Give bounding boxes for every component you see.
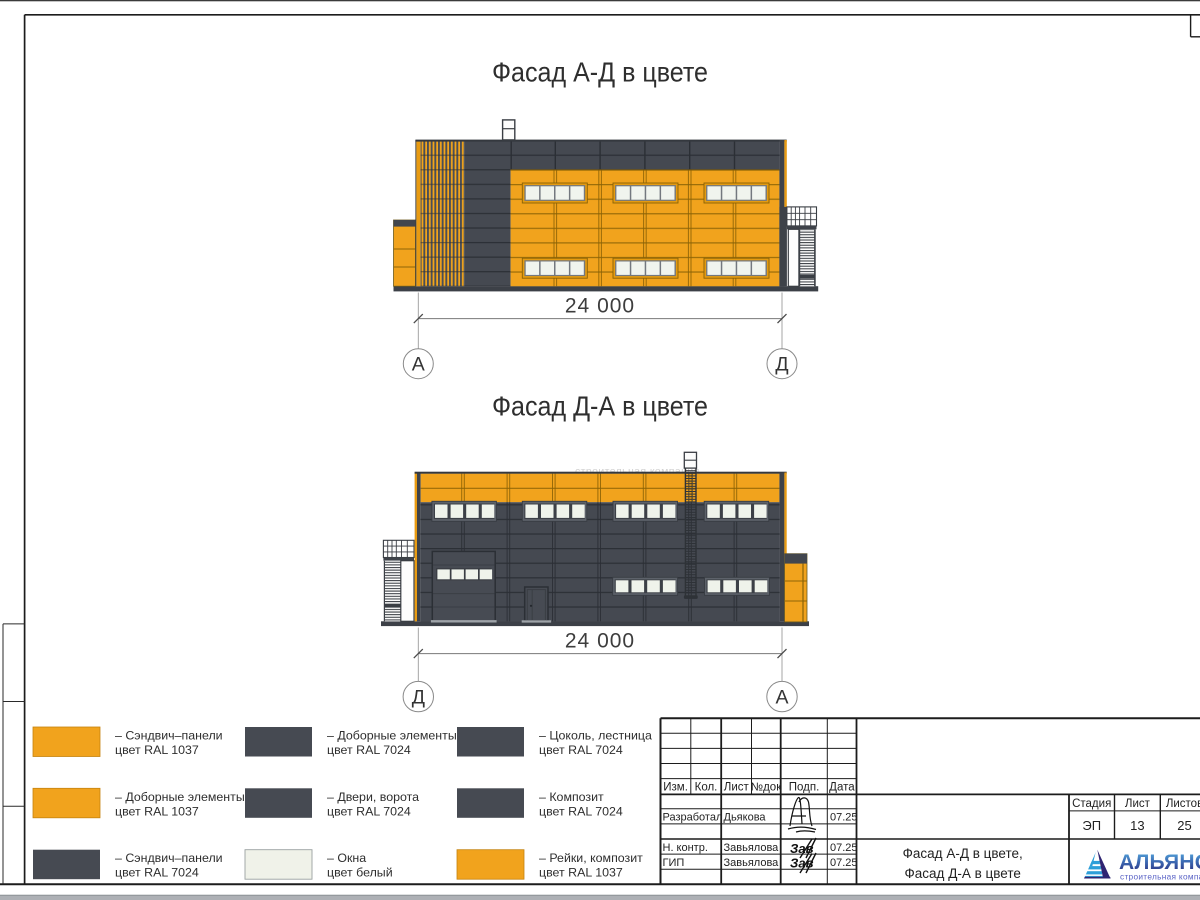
svg-text:цвет RAL 7024: цвет RAL 7024 <box>115 866 199 880</box>
svg-text:А: А <box>775 687 788 709</box>
svg-text:Фасад А-Д в цвете,: Фасад А-Д в цвете, <box>903 846 1023 861</box>
svg-text:цвет RAL 1037: цвет RAL 1037 <box>539 866 623 880</box>
svg-text:Лист: Лист <box>724 782 750 794</box>
svg-text:Изм.: Изм. <box>663 782 688 794</box>
svg-text:07.25: 07.25 <box>830 857 858 869</box>
svg-text:Кол.: Кол. <box>695 782 718 794</box>
svg-text:ГИП: ГИП <box>663 857 685 869</box>
svg-text:цвет RAL 7024: цвет RAL 7024 <box>539 743 623 757</box>
svg-text:№док: №док <box>751 782 782 794</box>
svg-text:цвет RAL 7024: цвет RAL 7024 <box>539 804 623 818</box>
svg-text:Лист: Лист <box>1125 798 1151 810</box>
svg-text:Фасад Д-А в цвете: Фасад Д-А в цвете <box>905 866 1021 881</box>
svg-text:07.25: 07.25 <box>830 842 858 854</box>
svg-text:ЭП: ЭП <box>1082 818 1101 833</box>
svg-text:– Сэндвич–панели: – Сэндвич–панели <box>115 729 223 743</box>
svg-text:Дьякова: Дьякова <box>724 812 767 824</box>
svg-text:– Сэндвич–панели: – Сэндвич–панели <box>115 851 223 865</box>
svg-text:– Доборные элементы: – Доборные элементы <box>115 790 245 804</box>
svg-text:строительная компания: строительная компания <box>1120 871 1200 881</box>
svg-text:– Композит: – Композит <box>539 790 604 804</box>
svg-text:24 000: 24 000 <box>565 295 635 318</box>
svg-text:А: А <box>412 354 425 376</box>
svg-text:Завьялова: Завьялова <box>724 857 780 869</box>
svg-text:07.25: 07.25 <box>830 812 858 824</box>
svg-text:Листов: Листов <box>1166 798 1200 810</box>
svg-text:Завьялова: Завьялова <box>724 842 780 854</box>
svg-text:цвет белый: цвет белый <box>327 866 393 880</box>
svg-text:Н. контр.: Н. контр. <box>663 842 708 854</box>
svg-text:– Доборные элементы: – Доборные элементы <box>327 729 457 743</box>
svg-text:Фасад А-Д в цвете: Фасад А-Д в цвете <box>492 57 708 88</box>
svg-text:Д: Д <box>412 687 425 709</box>
svg-text:цвет RAL 1037: цвет RAL 1037 <box>115 743 199 757</box>
svg-text:Д: Д <box>775 354 788 376</box>
svg-text:– Двери, ворота: – Двери, ворота <box>327 790 419 804</box>
svg-text:24 000: 24 000 <box>565 630 635 653</box>
svg-text:Подп.: Подп. <box>789 782 820 794</box>
svg-text:цвет RAL 7024: цвет RAL 7024 <box>327 804 411 818</box>
svg-text:Стадия: Стадия <box>1072 798 1111 810</box>
svg-text:цвет RAL 1037: цвет RAL 1037 <box>115 804 199 818</box>
svg-text:– Цоколь, лестница: – Цоколь, лестница <box>539 729 652 743</box>
svg-text:– Окна: – Окна <box>327 851 366 865</box>
svg-text:Фасад Д-А в цвете: Фасад Д-А в цвете <box>492 390 708 421</box>
svg-text:– Рейки, композит: – Рейки, композит <box>539 851 643 865</box>
svg-text:13: 13 <box>1130 818 1144 833</box>
svg-text:25: 25 <box>1177 818 1191 833</box>
svg-text:цвет RAL 7024: цвет RAL 7024 <box>327 743 411 757</box>
svg-text:Разработал: Разработал <box>663 812 723 824</box>
svg-text:Дата: Дата <box>829 782 855 794</box>
